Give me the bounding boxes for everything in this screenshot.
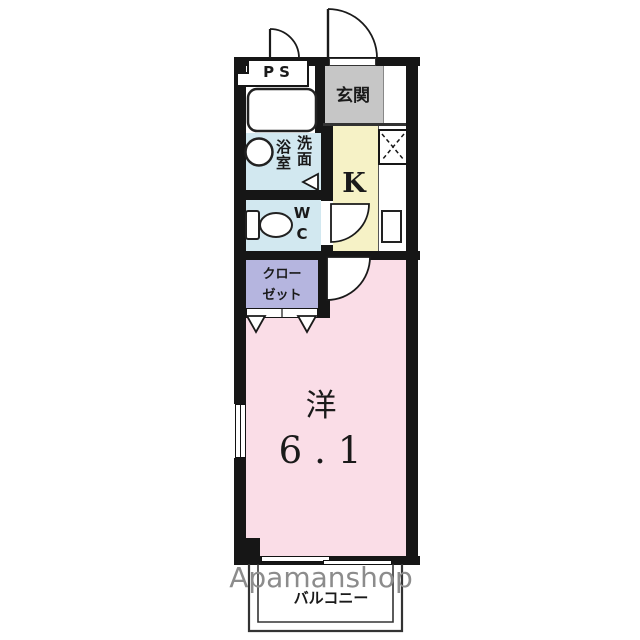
closet-label-line2: ゼット [262,284,301,303]
genkan-label: 玄関 [336,81,370,106]
main-room-label: 洋 [306,380,337,425]
floor-plan: PS 玄関 浴室 洗面 WC K クロー ゼット 洋 6.1 バルコニー Apa… [0,0,640,640]
wc-door-swing-icon [331,204,369,242]
main-room-size: 6.1 [279,429,374,472]
room-door-swing-icon [327,257,370,300]
closet-label-line1: クロー [262,263,301,282]
wc-label: WC [293,204,311,246]
small-door-swing-icon [270,29,299,58]
ps-label: PS [263,63,295,81]
closet-folding-door-icons [247,316,316,332]
toilet-icon [246,211,292,239]
bathtub-icon [248,89,316,131]
kitchen-label: K [342,168,365,199]
bath-label: 浴室 [273,139,294,171]
watermark-text: Apamanshop [229,561,413,594]
washbasin-icon [246,139,273,166]
washroom-door-marker-icon [303,174,318,190]
fixtures-layer [0,0,640,640]
kitchen-sink-icon [382,211,401,242]
refrigerator-space-icon [379,130,407,164]
washroom-label: 洗面 [294,135,315,167]
entrance-door-swing-icon [328,9,377,58]
